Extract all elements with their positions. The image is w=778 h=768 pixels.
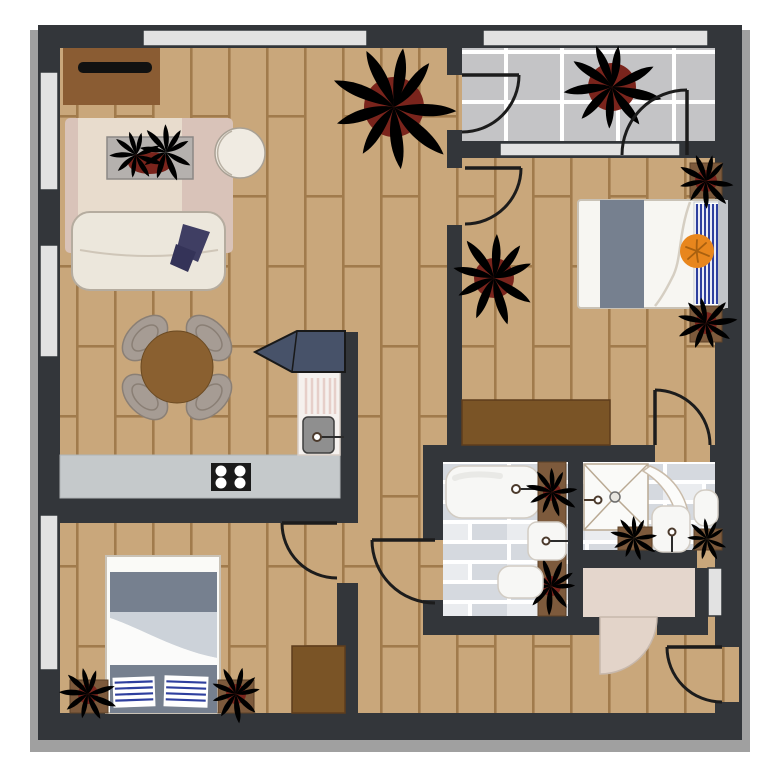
window	[500, 143, 680, 156]
striped-cushion	[112, 676, 155, 707]
kitchen-counter	[60, 455, 340, 498]
dresser	[292, 646, 345, 713]
window	[708, 568, 722, 616]
blanket	[110, 572, 217, 612]
faucet	[512, 485, 520, 493]
window	[40, 72, 58, 190]
striped-cushion	[163, 675, 208, 708]
tv-stand	[63, 48, 160, 105]
sofa	[72, 212, 225, 290]
corner-shower	[584, 464, 648, 530]
toilet	[498, 566, 543, 598]
double-bed	[578, 200, 728, 308]
window	[40, 515, 58, 670]
faucet	[669, 529, 676, 536]
entry-hall-floor	[583, 568, 695, 617]
drain	[610, 492, 620, 502]
shower-head	[595, 497, 602, 504]
blanket	[600, 200, 644, 308]
window	[143, 30, 367, 46]
balcony-floor	[462, 48, 715, 143]
double-bed	[106, 556, 220, 713]
wardrobe	[462, 400, 610, 445]
dining-table	[141, 331, 213, 403]
window	[40, 245, 58, 357]
floor-plan-drawing: Apartment floor plan (top-down view)	[0, 0, 778, 768]
window	[483, 30, 708, 46]
side-table	[215, 128, 265, 178]
floor-plan: Apartment floor plan (top-down view) Apa…	[0, 0, 778, 768]
headboard	[718, 200, 728, 308]
tv	[78, 62, 152, 73]
faucet	[313, 433, 321, 441]
orange-cushion	[680, 234, 714, 268]
kitchen-sink-unit	[298, 372, 344, 455]
faucet	[543, 538, 550, 545]
cooktop	[211, 463, 251, 491]
